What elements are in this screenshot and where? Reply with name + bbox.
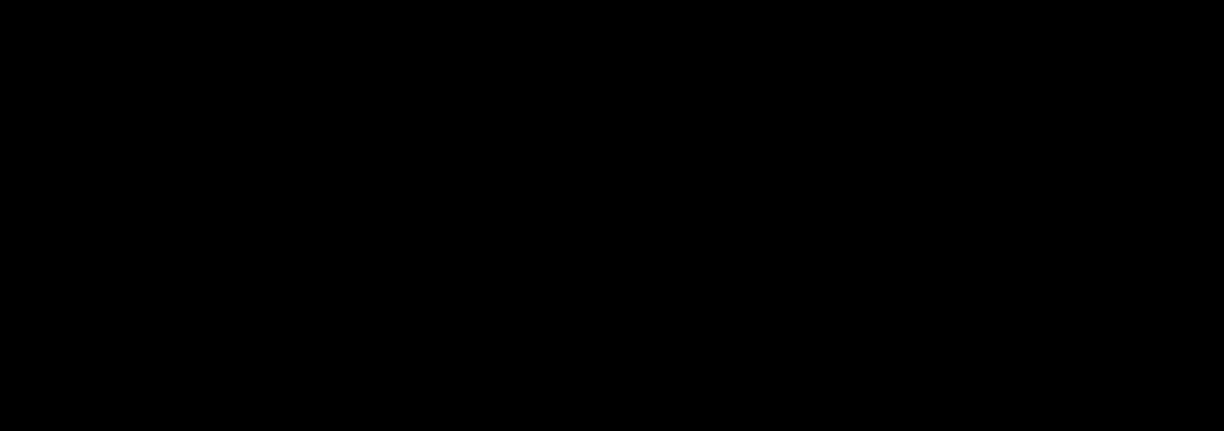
cad-multi-sheet-canvas <box>0 0 1224 431</box>
cad-workspace <box>0 0 1224 431</box>
